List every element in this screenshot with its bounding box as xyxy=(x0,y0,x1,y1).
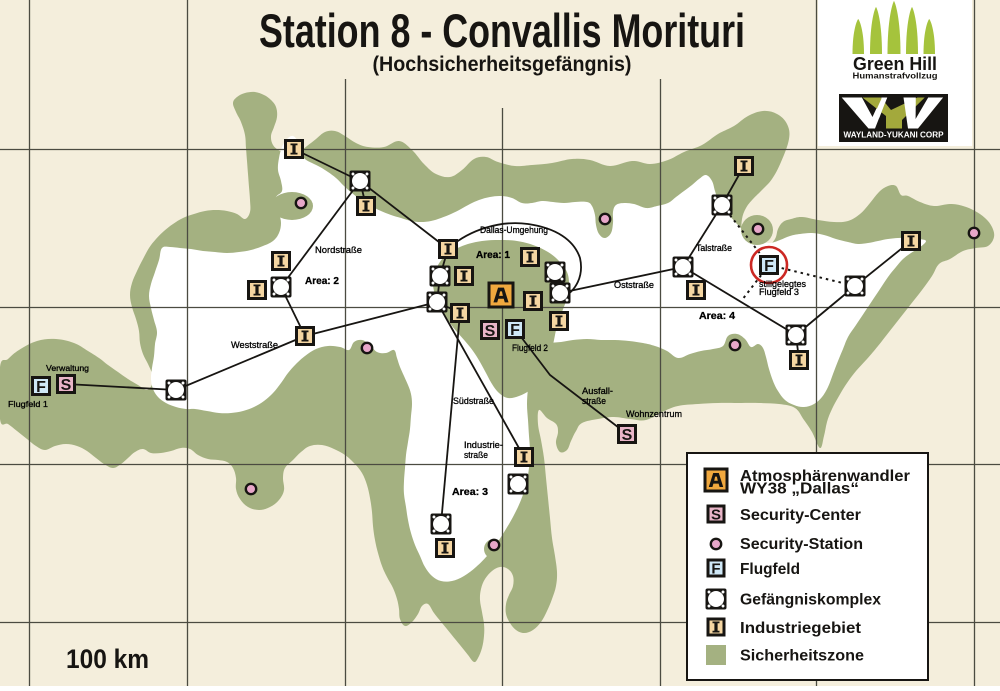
svg-text:Area: 2: Area: 2 xyxy=(305,275,339,287)
svg-text:S: S xyxy=(61,377,72,394)
svg-text:WY38 „Dallas“: WY38 „Dallas“ xyxy=(740,481,859,498)
svg-text:Flugfeld 3: Flugfeld 3 xyxy=(759,287,799,298)
svg-text:(Hochsicherheitsgefängnis): (Hochsicherheitsgefängnis) xyxy=(373,53,632,76)
svg-text:Security-Station: Security-Station xyxy=(740,536,863,553)
svg-text:100 km: 100 km xyxy=(66,644,149,674)
svg-text:S: S xyxy=(711,506,721,523)
svg-text:Verwaltung: Verwaltung xyxy=(46,363,89,373)
svg-text:straße: straße xyxy=(464,450,488,461)
svg-text:Industriegebiet: Industriegebiet xyxy=(740,620,862,637)
svg-text:Flugfeld: Flugfeld xyxy=(740,561,800,578)
svg-text:straße: straße xyxy=(582,396,606,407)
svg-text:F: F xyxy=(36,379,46,396)
svg-text:Station 8 - Convallis Morituri: Station 8 - Convallis Morituri xyxy=(259,4,745,57)
svg-text:F: F xyxy=(711,560,720,577)
svg-text:S: S xyxy=(485,323,496,340)
svg-text:Area: 1: Area: 1 xyxy=(476,249,510,261)
svg-text:Oststraße: Oststraße xyxy=(614,280,654,291)
svg-text:Wohnzentrum: Wohnzentrum xyxy=(626,409,682,420)
svg-text:Humanstrafvollzug: Humanstrafvollzug xyxy=(853,71,938,81)
svg-text:Flugfeld 1: Flugfeld 1 xyxy=(8,399,48,409)
svg-text:Flugfeld 2: Flugfeld 2 xyxy=(512,343,548,354)
svg-text:Area: 4: Area: 4 xyxy=(699,310,735,322)
svg-text:F: F xyxy=(764,258,774,275)
svg-text:Nordstraße: Nordstraße xyxy=(315,245,362,256)
svg-text:Weststraße: Weststraße xyxy=(231,340,278,351)
svg-text:Area: 3: Area: 3 xyxy=(452,486,488,498)
svg-text:Dallas-Umgehung: Dallas-Umgehung xyxy=(480,225,548,236)
svg-text:Security-Center: Security-Center xyxy=(740,507,861,524)
svg-text:Sicherheitszone: Sicherheitszone xyxy=(740,648,864,665)
svg-text:F: F xyxy=(510,322,520,339)
svg-text:WAYLAND-YUKANI CORP: WAYLAND-YUKANI CORP xyxy=(844,131,945,140)
svg-text:Talstraße: Talstraße xyxy=(696,243,732,254)
svg-text:Südstraße: Südstraße xyxy=(453,396,494,407)
svg-text:Gefängniskomplex: Gefängniskomplex xyxy=(740,592,881,609)
svg-text:S: S xyxy=(622,427,633,444)
